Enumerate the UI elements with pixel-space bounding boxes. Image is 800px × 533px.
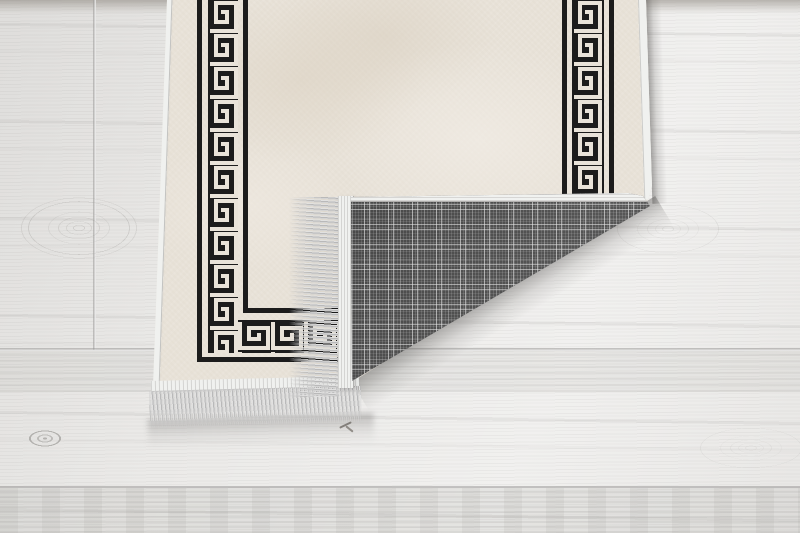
flap-fringe-tassels: [287, 197, 339, 397]
rug-product-photo: [0, 0, 800, 533]
